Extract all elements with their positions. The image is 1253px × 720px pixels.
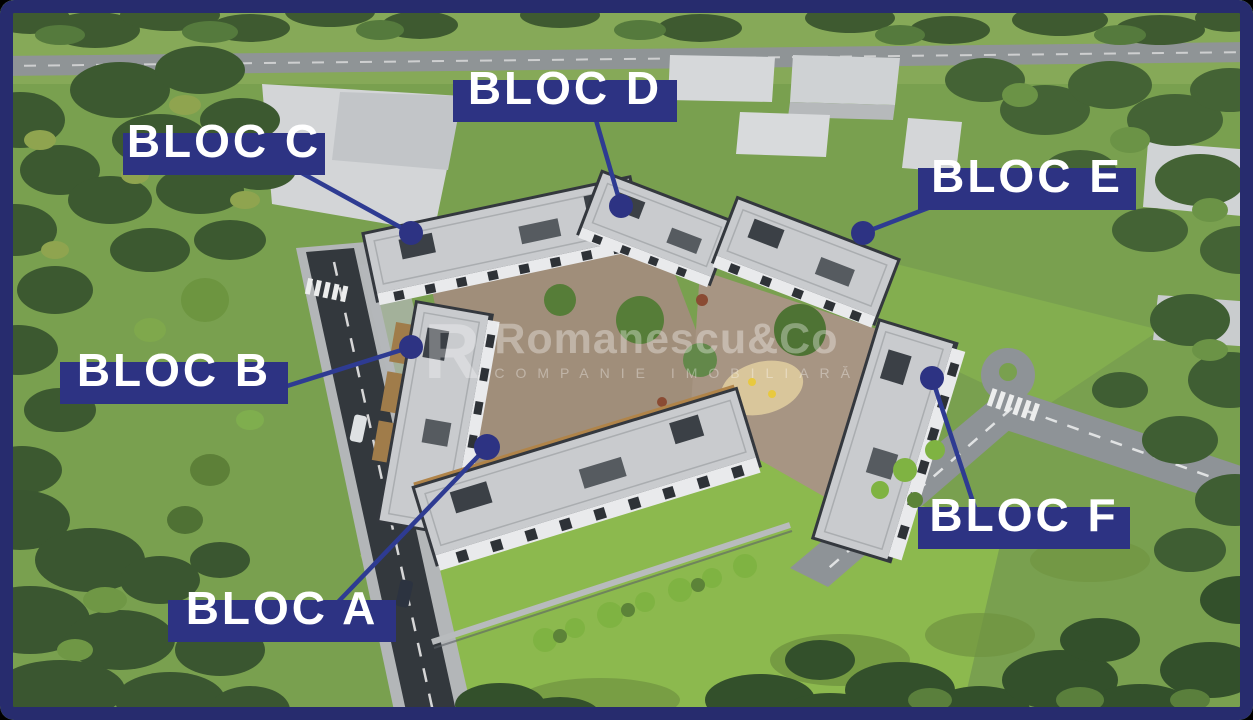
- label-bloc-c: BLOC C: [123, 133, 325, 175]
- label-bloc-b-text: BLOC B: [77, 347, 271, 393]
- label-bloc-a: BLOC A: [168, 600, 396, 642]
- label-bloc-e: BLOC E: [918, 168, 1136, 210]
- label-bloc-f-text: BLOC F: [929, 492, 1118, 538]
- label-bloc-b: BLOC B: [60, 362, 288, 404]
- label-bloc-d-text: BLOC D: [468, 65, 662, 111]
- label-bloc-c-text: BLOC C: [127, 118, 321, 164]
- aerial-render-image: R Romanescu&Co COMPANIE IMOBILIARĂ BLOC …: [0, 0, 1253, 720]
- label-bloc-d: BLOC D: [453, 80, 677, 122]
- label-bloc-a-text: BLOC A: [186, 585, 379, 631]
- label-bloc-f: BLOC F: [918, 507, 1130, 549]
- label-bloc-e-text: BLOC E: [931, 153, 1123, 199]
